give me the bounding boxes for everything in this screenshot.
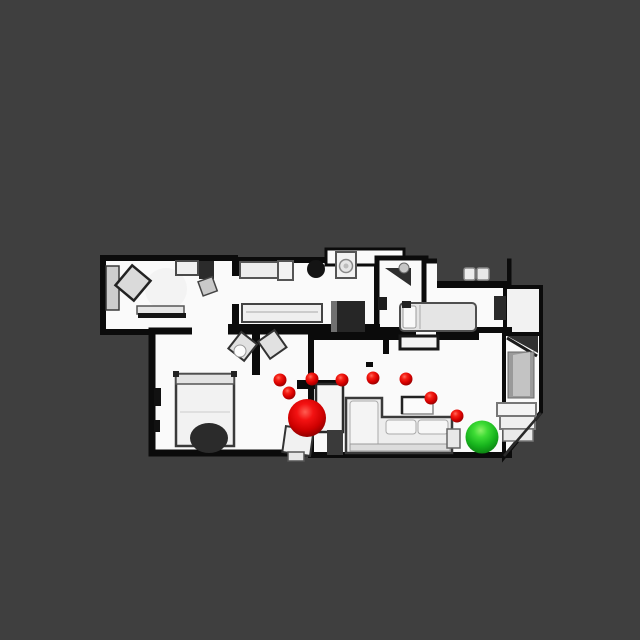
door-gap xyxy=(192,326,228,337)
stair-step xyxy=(497,403,536,416)
cabinet xyxy=(176,261,198,275)
tv-console xyxy=(400,336,438,349)
waypoint-marker xyxy=(283,387,296,400)
living-top-wall xyxy=(312,331,479,340)
bedpost xyxy=(231,371,237,377)
washer-core xyxy=(344,264,349,269)
waypoint-marker xyxy=(367,372,380,385)
stool xyxy=(464,268,475,280)
viewer-window xyxy=(0,0,640,640)
wardrobe-dark xyxy=(494,296,506,320)
shelf xyxy=(137,306,184,314)
pillow xyxy=(403,306,416,328)
fridge-edge xyxy=(331,301,337,332)
start-marker xyxy=(288,399,326,437)
duvet-dark xyxy=(190,423,228,453)
waypoint-marker xyxy=(400,373,413,386)
waypoint-marker xyxy=(336,374,349,387)
closet-shadow xyxy=(327,430,343,455)
wall-mark xyxy=(154,420,160,432)
sofa-back xyxy=(350,444,450,451)
waypoint-marker xyxy=(425,392,438,405)
stool xyxy=(477,268,489,280)
armchair-foot xyxy=(288,452,304,461)
door-gap xyxy=(230,276,241,304)
floor-mark xyxy=(464,332,475,339)
sofa-chaise xyxy=(350,401,378,447)
headboard xyxy=(176,374,234,384)
dark-fixture xyxy=(378,297,387,310)
bed-corner-mark xyxy=(402,301,411,308)
stairwell-light xyxy=(513,352,530,396)
counter xyxy=(240,262,280,278)
cushion xyxy=(234,345,246,357)
side-table xyxy=(447,429,460,448)
doorframe-mark xyxy=(383,335,389,354)
scene-viewport[interactable] xyxy=(0,0,640,640)
goal-marker xyxy=(466,421,499,454)
floor-mark xyxy=(366,362,373,367)
kitchen-island xyxy=(242,304,322,322)
sofa-cushion xyxy=(386,420,416,434)
bedpost xyxy=(173,371,179,377)
sink xyxy=(399,263,409,273)
cabinet xyxy=(278,261,293,280)
shelf-shadow xyxy=(138,313,186,318)
waypoint-marker xyxy=(451,410,464,423)
waypoint-marker xyxy=(274,374,287,387)
wall-mark xyxy=(154,388,161,406)
bedroom-top-wall xyxy=(437,281,511,288)
column-blob xyxy=(307,260,325,278)
partition-stub-wall xyxy=(252,331,260,375)
waypoint-marker xyxy=(306,373,319,386)
sofa-cushion xyxy=(418,420,448,434)
